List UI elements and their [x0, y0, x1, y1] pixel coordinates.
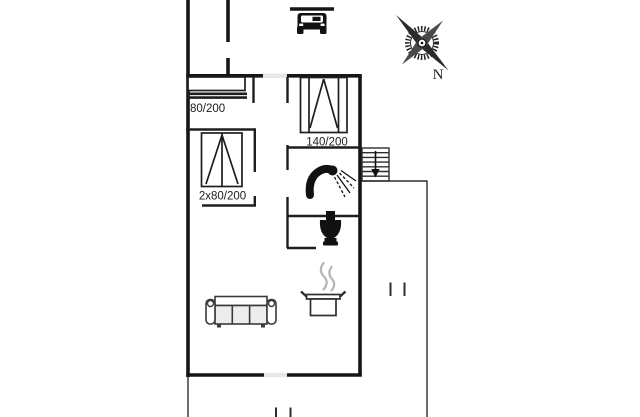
floor-plan: N	[0, 0, 640, 417]
single-bed-icon: 80/200	[187, 77, 247, 115]
carport	[290, 9, 334, 34]
front-door-opening	[263, 74, 287, 78]
terrace-door-opening	[264, 373, 287, 377]
sofa-icon	[206, 297, 276, 328]
double-bed-icon: 2x80/200	[199, 133, 246, 203]
shower-icon	[310, 166, 356, 198]
stairs-icon	[362, 148, 389, 181]
compass-rose-icon: N	[396, 15, 449, 83]
terrace-bottom	[188, 377, 291, 417]
bed-2x80-label: 2x80/200	[199, 191, 246, 203]
cooking-pot-icon	[301, 263, 346, 316]
bed-140-label: 140/200	[306, 137, 348, 149]
compass-north-label: N	[433, 67, 444, 83]
bed-140-icon: 140/200	[301, 78, 348, 149]
terrace-right	[362, 181, 427, 417]
bed-80-label: 80/200	[190, 103, 225, 115]
car-icon	[297, 13, 327, 34]
floor-plan-drawing: N	[0, 0, 640, 417]
